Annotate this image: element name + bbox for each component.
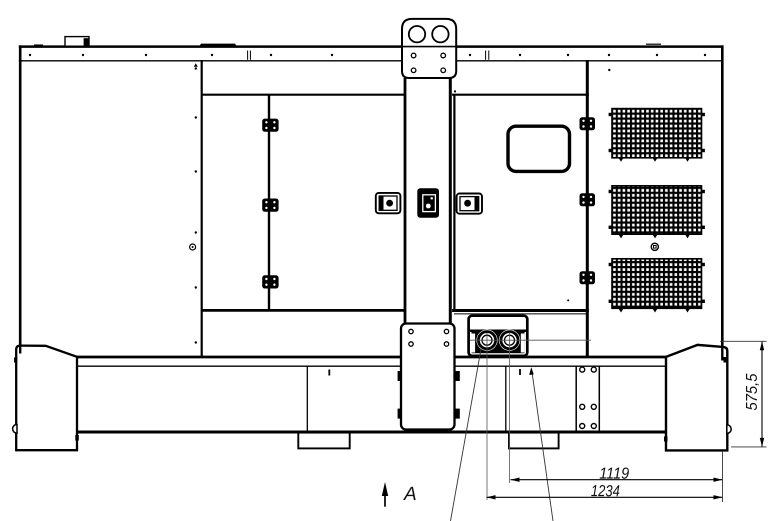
svg-text:1234: 1234: [591, 483, 620, 500]
svg-text:A: A: [403, 484, 417, 505]
svg-text:1119: 1119: [599, 466, 629, 483]
svg-text:575,5: 575,5: [744, 373, 761, 410]
